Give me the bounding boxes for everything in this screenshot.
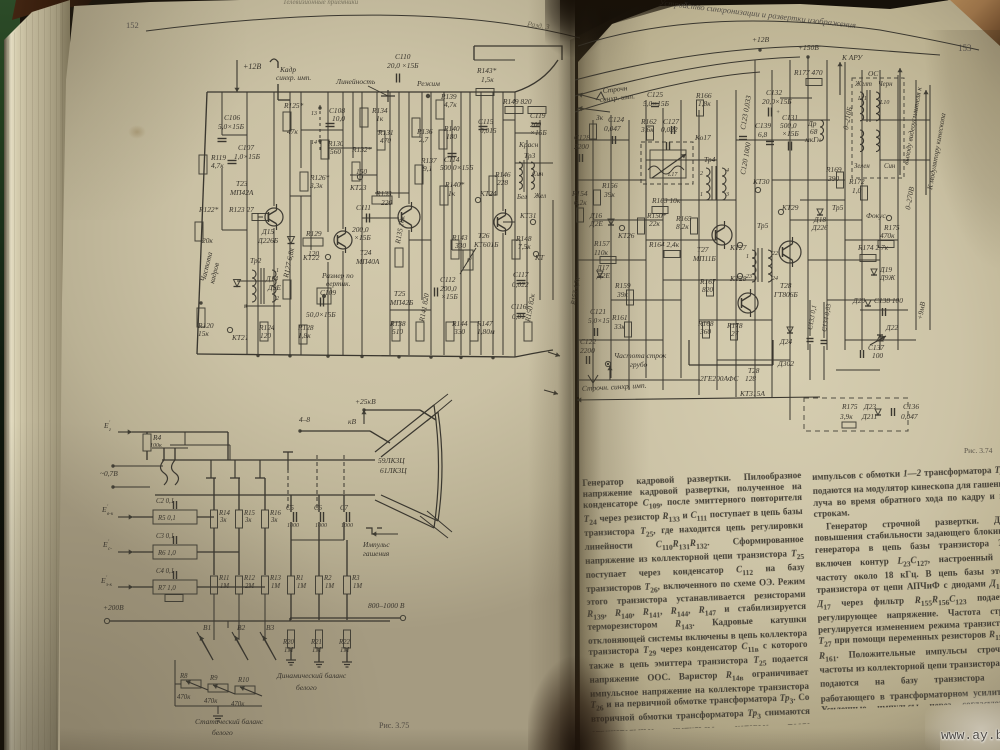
svg-text:0,015: 0,015 — [480, 126, 497, 135]
svg-text:Д302: Д302 — [777, 359, 794, 368]
svg-text:КТ23: КТ23 — [349, 183, 367, 192]
svg-text:+200В: +200В — [103, 603, 124, 612]
svg-text:Д9Е: Д9Е — [267, 283, 281, 292]
svg-text:Рис. 3.74: Рис. 3.74 — [964, 446, 993, 455]
svg-text:120: 120 — [260, 331, 271, 340]
svg-text:Тр5: Тр5 — [757, 221, 769, 230]
svg-text:R6 1,0: R6 1,0 — [157, 550, 176, 557]
svg-text:10,0: 10,0 — [332, 114, 345, 123]
svg-text:R133: R133 — [375, 189, 392, 198]
svg-text:15к: 15к — [198, 329, 209, 338]
svg-text:5,0×15Б: 5,0×15Б — [643, 99, 670, 108]
svg-text:R13: R13 — [269, 575, 282, 582]
svg-text:152: 152 — [126, 20, 139, 30]
svg-text:1М: 1М — [297, 583, 306, 590]
svg-text:L11: L11 — [857, 96, 867, 102]
svg-text:МП11Б: МП11Б — [692, 254, 716, 263]
svg-text:R140*: R140* — [444, 180, 465, 189]
svg-text:2,7: 2,7 — [419, 135, 429, 144]
svg-text:синхр. имп.: синхр. имп. — [276, 73, 311, 82]
svg-text:1000: 1000 — [287, 523, 299, 529]
svg-text:+12В: +12В — [243, 62, 261, 71]
svg-text:R1: R1 — [295, 575, 304, 582]
svg-text:кВ: кВ — [348, 417, 356, 426]
svg-text:Д23: Д23 — [863, 402, 876, 411]
svg-text:470: 470 — [380, 136, 391, 145]
svg-text:4,7к: 4,7к — [211, 161, 224, 170]
svg-text:Статический баланс: Статический баланс — [195, 717, 264, 726]
svg-text:2М: 2М — [245, 583, 254, 590]
svg-text:МП40А: МП40А — [355, 257, 380, 266]
svg-text:R5 0,1: R5 0,1 — [157, 515, 176, 522]
svg-text:330: 330 — [454, 241, 466, 250]
svg-text:Тр5: Тр5 — [832, 203, 844, 212]
svg-text:~0,7В: ~0,7В — [100, 469, 118, 478]
svg-text:з-к: з-к — [105, 583, 113, 588]
svg-text:20,0 ×15Б: 20,0 ×15Б — [387, 61, 419, 70]
svg-text:белого: белого — [296, 683, 317, 692]
svg-text:С4 0,1: С4 0,1 — [156, 568, 174, 575]
svg-text:R135 10к: R135 10к — [393, 214, 407, 245]
svg-text:К АРУ: К АРУ — [841, 53, 863, 62]
svg-text:Т23: Т23 — [236, 179, 248, 188]
svg-text:1: 1 — [276, 268, 279, 274]
svg-text:С136: С136 — [903, 402, 919, 411]
svg-text:С125: С125 — [647, 90, 663, 99]
svg-text:ОС: ОС — [868, 69, 878, 78]
svg-text:С116: С116 — [511, 302, 527, 311]
svg-text:3к: 3к — [219, 517, 227, 524]
svg-text:×15Б: ×15Б — [354, 233, 371, 242]
svg-text:Т25: Т25 — [394, 289, 406, 298]
svg-text:Д15: Д15 — [261, 227, 274, 236]
svg-text:470к: 470к — [231, 701, 245, 708]
svg-text:470к: 470к — [177, 694, 191, 701]
svg-text:180: 180 — [446, 132, 457, 141]
svg-text:+150В: +150В — [798, 43, 819, 52]
svg-text:+25кВ: +25кВ — [355, 397, 376, 406]
svg-text:20к: 20к — [202, 236, 213, 245]
svg-text:3,9к: 3,9к — [839, 412, 853, 421]
svg-text:560: 560 — [330, 147, 341, 156]
svg-text:КТ22: КТ22 — [302, 253, 320, 262]
svg-text:×15Б: ×15Б — [441, 292, 458, 301]
svg-text:+: + — [776, 110, 780, 116]
svg-text:330: 330 — [453, 327, 465, 336]
svg-text:КТ27: КТ27 — [729, 243, 747, 252]
svg-text:27: 27 — [731, 329, 739, 338]
svg-text:Динамический баланс: Динамический баланс — [276, 671, 347, 680]
svg-text:0,01: 0,01 — [512, 312, 525, 321]
svg-text:1М: 1М — [325, 583, 334, 590]
svg-text:800–1000 В: 800–1000 В — [368, 601, 405, 610]
svg-text:Т28: Т28 — [748, 366, 760, 375]
svg-text:R22: R22 — [338, 639, 351, 646]
svg-text:R123 27: R123 27 — [228, 205, 254, 214]
svg-text:2ГЕ200АФС: 2ГЕ200АФС — [700, 374, 739, 383]
svg-text:R163 10к: R163 10к — [651, 196, 681, 205]
svg-text:4: 4 — [726, 167, 729, 174]
svg-text:R177 470: R177 470 — [793, 68, 823, 77]
svg-text:': ' — [109, 421, 111, 426]
svg-text:23: 23 — [746, 274, 752, 280]
svg-text:1М: 1М — [271, 583, 280, 590]
svg-text:КТ29: КТ29 — [781, 203, 799, 212]
svg-text:Импульс: Импульс — [362, 540, 390, 549]
svg-text:R122*: R122* — [198, 205, 219, 214]
svg-text:R15: R15 — [243, 510, 256, 517]
svg-text:R12: R12 — [243, 575, 256, 582]
svg-text:С110: С110 — [395, 52, 411, 61]
svg-text:Черн: Черн — [878, 81, 893, 88]
svg-text:3: 3 — [243, 304, 247, 310]
svg-text:3к: 3к — [270, 517, 278, 524]
svg-text:0,047: 0,047 — [901, 412, 918, 421]
svg-text:1000: 1000 — [341, 523, 353, 529]
svg-text:1: 1 — [746, 254, 749, 260]
svg-text:В1: В1 — [203, 623, 211, 632]
svg-text:С107: С107 — [238, 143, 254, 152]
svg-text:14: 14 — [311, 139, 317, 146]
svg-text:Частота строк: Частота строк — [614, 351, 667, 360]
svg-text:0,047: 0,047 — [604, 124, 621, 133]
svg-text:С134 0,03: С134 0,03 — [821, 303, 833, 333]
svg-text:24: 24 — [772, 275, 778, 282]
svg-text:С111: С111 — [356, 203, 371, 212]
svg-text:1,0×15Б: 1,0×15Б — [234, 152, 261, 161]
svg-text:R11: R11 — [218, 575, 229, 582]
svg-text:360: 360 — [699, 327, 711, 336]
svg-text:R8: R8 — [179, 673, 188, 680]
svg-text:': ' — [106, 576, 108, 581]
svg-text:228: 228 — [497, 178, 508, 187]
svg-text:1,80м: 1,80м — [477, 327, 495, 336]
svg-text:R164 2,4к: R164 2,4к — [648, 240, 680, 249]
svg-text:R2: R2 — [323, 575, 332, 582]
svg-text:КТ26: КТ26 — [617, 231, 635, 240]
svg-text:': ' — [107, 505, 109, 510]
svg-text:Т27: Т27 — [697, 245, 709, 254]
svg-text:50,0×15Б: 50,0×15Б — [306, 310, 336, 319]
svg-text:Ко17: Ко17 — [694, 133, 711, 142]
svg-text:КТ24: КТ24 — [479, 189, 497, 198]
svg-text:Устройство синхронизации и: Устройство синхронизации и развертки изо… — [659, 0, 857, 30]
svg-text:С123 0,033: С123 0,033 — [738, 95, 753, 131]
svg-text:R159: R159 — [614, 281, 631, 290]
svg-text:R174 2,7к: R174 2,7к — [857, 243, 889, 252]
svg-text:С5: С5 — [286, 505, 295, 512]
svg-text:1М: 1М — [340, 647, 349, 654]
svg-text:220: 220 — [381, 198, 392, 207]
svg-text:КТ28: КТ28 — [729, 274, 747, 283]
svg-text:1,8к: 1,8к — [298, 331, 311, 340]
svg-text:R3: R3 — [351, 575, 360, 582]
svg-text:КТ21: КТ21 — [231, 333, 248, 342]
svg-text:8,2к: 8,2к — [676, 222, 689, 231]
svg-text:47к: 47к — [287, 127, 298, 136]
svg-text:С115: С115 — [478, 117, 494, 126]
svg-text:R141 820: R141 820 — [417, 292, 431, 323]
svg-text:гашения: гашения — [363, 549, 390, 558]
svg-text:R129: R129 — [305, 229, 322, 238]
svg-text:С117: С117 — [513, 270, 529, 279]
svg-text:+12В: +12В — [752, 35, 770, 44]
svg-text:выходу видеоусилителя к: выходу видеоусилителя к — [901, 86, 924, 166]
svg-text:3: 3 — [725, 192, 729, 198]
svg-text:33к: 33к — [613, 322, 625, 331]
svg-text:С2 0,1: С2 0,1 — [156, 498, 174, 505]
svg-text:R161: R161 — [611, 313, 628, 322]
svg-text:МП42Б: МП42Б — [389, 298, 414, 307]
svg-text:L10: L10 — [879, 100, 889, 106]
svg-text:22к: 22к — [649, 219, 660, 228]
svg-text:Фокус: Фокус — [866, 211, 886, 220]
svg-text:R175: R175 — [841, 402, 858, 411]
svg-text:13: 13 — [311, 111, 317, 117]
svg-text:R16: R16 — [269, 510, 282, 517]
svg-text:6,8: 6,8 — [758, 130, 768, 139]
svg-text:t°: t° — [467, 255, 472, 264]
svg-text:820: 820 — [702, 285, 713, 294]
svg-text:1М: 1М — [353, 583, 362, 590]
svg-text:Д226Б: Д226Б — [257, 236, 279, 245]
svg-text:С106: С106 — [224, 113, 240, 122]
svg-text:мкГн: мкГн — [804, 135, 821, 144]
svg-text:1М: 1М — [312, 647, 321, 654]
svg-text:ГТ806Б: ГТ806Б — [773, 290, 798, 299]
svg-text:КТ601Б: КТ601Б — [473, 240, 499, 249]
svg-text:R125*: R125* — [283, 101, 304, 110]
svg-text:С124: С124 — [608, 115, 624, 124]
svg-text:С138 100: С138 100 — [874, 296, 903, 305]
svg-text:С139: С139 — [755, 121, 771, 130]
svg-text:R9: R9 — [209, 675, 218, 682]
svg-text:128: 128 — [745, 374, 756, 383]
svg-text:4–8: 4–8 — [299, 415, 310, 424]
svg-text:Д20: Д20 — [852, 296, 865, 305]
svg-text:L17: L17 — [667, 172, 678, 178]
svg-text:61ЛК3Ц: 61ЛК3Ц — [380, 466, 407, 475]
svg-text:Тр2: Тр2 — [250, 256, 262, 265]
svg-text:3к: 3к — [244, 517, 252, 524]
svg-text:R7 1,0: R7 1,0 — [157, 585, 176, 592]
svg-text:С6: С6 — [314, 505, 323, 512]
svg-text:Д211: Д211 — [861, 412, 877, 421]
svg-text:Линейность: Линейность — [335, 77, 376, 86]
svg-text:R132*: R132* — [351, 145, 372, 154]
svg-text:Т28: Т28 — [780, 281, 792, 290]
svg-text:59ЛК3Ц: 59ЛК3Ц — [378, 456, 405, 465]
svg-text:500,0×15Б: 500,0×15Б — [440, 163, 474, 172]
svg-text:390: 390 — [827, 174, 839, 183]
svg-text:С3 0,1: С3 0,1 — [156, 533, 174, 540]
svg-text:1М: 1М — [220, 583, 229, 590]
svg-text:Бел: Бел — [516, 194, 527, 201]
svg-text:2: 2 — [276, 296, 279, 302]
svg-text:470к: 470к — [204, 698, 218, 705]
svg-text:К модулятору кинескопа: К модулятору кинескопа — [925, 112, 948, 191]
svg-text:Тр4: Тр4 — [704, 155, 716, 164]
svg-text:С133 0,1: С133 0,1 — [807, 305, 818, 331]
svg-text:R14: R14 — [218, 510, 231, 517]
svg-text:Т24: Т24 — [360, 248, 372, 257]
svg-text:5,0×15Б: 5,0×15Б — [218, 122, 245, 131]
svg-text:0,022: 0,022 — [661, 125, 678, 134]
svg-text:1,5к: 1,5к — [481, 75, 494, 84]
svg-text:в-к: в-к — [107, 512, 114, 517]
svg-text:Желт: Желт — [854, 81, 872, 88]
svg-text:МП42А: МП42А — [229, 188, 254, 197]
svg-text:В3: В3 — [266, 623, 275, 632]
svg-text:0,022: 0,022 — [512, 280, 529, 289]
svg-text:С112: С112 — [440, 275, 456, 284]
svg-text:1к: 1к — [448, 189, 456, 198]
svg-text:': ' — [108, 540, 110, 545]
svg-text:+9мВ: +9мВ — [915, 301, 927, 321]
svg-text:R143*: R143* — [476, 66, 497, 75]
svg-text:1,8к: 1,8к — [698, 99, 711, 108]
svg-text:Д22: Д22 — [885, 323, 898, 332]
svg-text:Д226: Д226 — [811, 223, 828, 232]
svg-text:R21: R21 — [310, 639, 322, 646]
svg-text:0–270В: 0–270В — [903, 186, 916, 211]
svg-text:Син: Син — [884, 163, 896, 170]
svg-text:с-: с- — [108, 547, 112, 552]
svg-text:вертик.: вертик. — [326, 279, 351, 288]
svg-text:Д24: Д24 — [779, 337, 792, 346]
svg-text:В2: В2 — [237, 623, 246, 632]
svg-text:39к: 39к — [603, 190, 615, 199]
svg-text:R10: R10 — [237, 677, 250, 684]
svg-text:4,7к: 4,7к — [444, 100, 457, 109]
svg-text:С120 1000: С120 1000 — [738, 141, 753, 175]
svg-text:Т26: Т26 — [478, 231, 490, 240]
svg-text:×15Б: ×15Б — [782, 129, 799, 138]
svg-text:2: 2 — [700, 171, 703, 177]
svg-text:1: 1 — [700, 192, 703, 198]
svg-text:100: 100 — [872, 351, 883, 360]
svg-text:470к: 470к — [880, 231, 895, 240]
svg-text:R4: R4 — [152, 433, 162, 442]
svg-text:Режим: Режим — [416, 79, 440, 88]
svg-text:1000: 1000 — [315, 523, 327, 529]
svg-text:Телевизионные приемники: Телевизионные приемники — [283, 0, 359, 6]
svg-text:R20: R20 — [282, 639, 295, 646]
svg-text:22: 22 — [772, 251, 778, 257]
svg-text:КТ30: КТ30 — [752, 177, 770, 186]
svg-text:R156: R156 — [601, 181, 618, 190]
svg-text:КТ315А: КТ315А — [739, 389, 765, 398]
svg-text:Зелен: Зелен — [854, 163, 870, 170]
svg-text:Д9Ж: Д9Ж — [879, 273, 896, 282]
svg-text:3,3к: 3,3к — [309, 181, 323, 190]
svg-text:R169: R169 — [825, 165, 842, 174]
svg-text:100к: 100к — [150, 443, 162, 449]
svg-text:С132: С132 — [766, 88, 782, 97]
svg-text:г: г — [109, 428, 111, 433]
svg-text:510: 510 — [392, 327, 403, 336]
svg-text:R127 6,8к: R127 6,8к — [281, 247, 296, 280]
svg-text:грубо: грубо — [630, 360, 648, 369]
svg-text:1М: 1М — [284, 647, 293, 654]
svg-text:1к: 1к — [376, 114, 384, 123]
svg-text:9,1: 9,1 — [423, 164, 432, 173]
